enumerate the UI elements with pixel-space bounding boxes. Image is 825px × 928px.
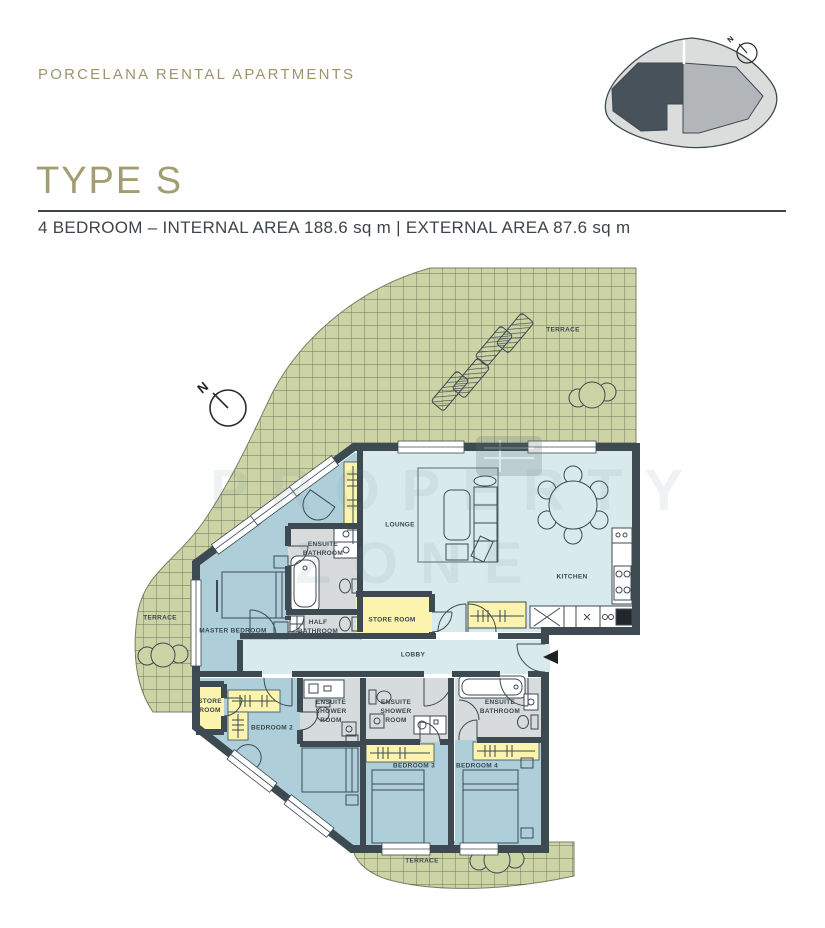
north-label: N xyxy=(194,379,211,397)
label-ensuite-bathroom-master: ENSUITE BATHROOM xyxy=(300,541,346,559)
plan-svg: N N xyxy=(0,0,825,928)
label-bedroom-4: BEDROOM 4 xyxy=(456,763,498,772)
label-master-bedroom: MASTER BEDROOM xyxy=(199,628,266,637)
label-store-room-main: STORE ROOM xyxy=(368,617,415,626)
north-arrow: N xyxy=(194,379,246,426)
label-bedroom-3: BEDROOM 3 xyxy=(393,763,435,772)
label-lounge: LOUNGE xyxy=(385,522,415,531)
watermark-logo xyxy=(476,436,542,476)
page-title: TYPE S xyxy=(36,160,183,203)
label-kitchen: KITCHEN xyxy=(557,574,588,583)
label-ensuite-shower-room-3: ENSUITE SHOWER ROOM xyxy=(374,699,418,725)
label-terrace-bottom: TERRACE xyxy=(405,858,439,867)
label-store-room-bedroom2: STORE ROOM xyxy=(196,698,224,716)
area-summary: 4 BEDROOM – INTERNAL AREA 188.6 sq m | E… xyxy=(38,218,630,238)
label-ensuite-bathroom-4: ENSUITE BATHROOM xyxy=(476,699,524,717)
label-terrace-top: TERRACE xyxy=(546,327,580,336)
coat-closet-floor xyxy=(468,602,526,628)
label-lobby: LOBBY xyxy=(401,652,425,661)
floorplan-page: N N PORCELANA RENTAL APARTMENTS TYPE S 4… xyxy=(0,0,825,928)
title-divider xyxy=(38,210,786,212)
label-half-bathroom: HALF BATHROOM xyxy=(297,619,339,637)
store-room-1-floor xyxy=(356,594,432,636)
locator-north-label: N xyxy=(726,34,736,44)
label-bedroom-2: BEDROOM 2 xyxy=(251,725,293,734)
locator-map: N xyxy=(605,34,776,147)
label-terrace-left: TERRACE xyxy=(143,615,177,624)
brand-name: PORCELANA RENTAL APARTMENTS xyxy=(38,66,355,83)
lobby-floor xyxy=(240,640,545,674)
label-ensuite-shower-room-2: ENSUITE SHOWER ROOM xyxy=(309,699,353,725)
